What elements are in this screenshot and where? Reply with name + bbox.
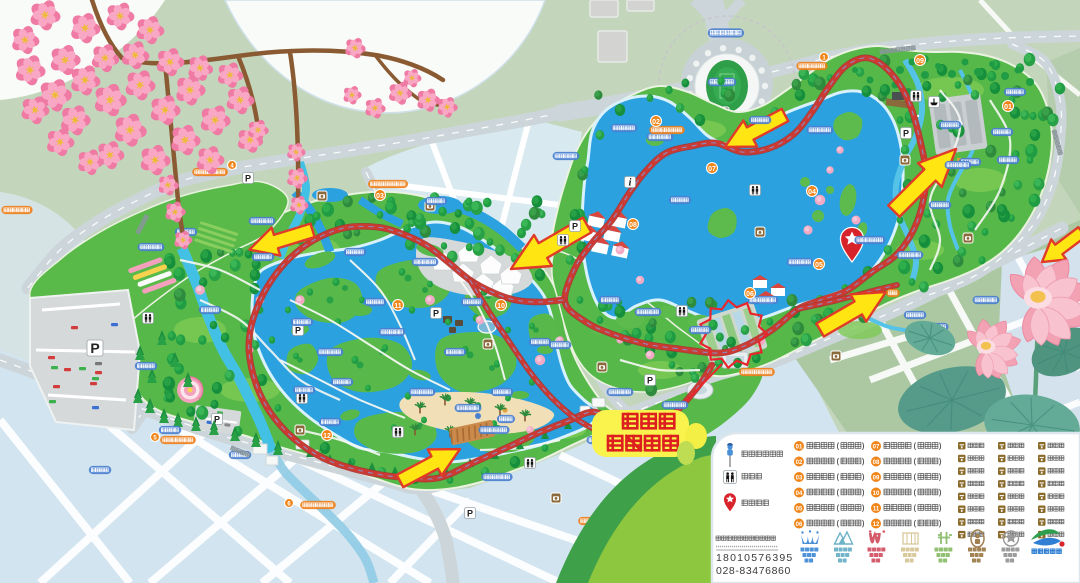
- svg-text:11: 11: [873, 506, 880, 512]
- svg-text:P: P: [433, 309, 439, 319]
- svg-text:12: 12: [873, 522, 880, 528]
- svg-text:P: P: [647, 376, 653, 386]
- svg-text:07: 07: [873, 444, 880, 450]
- svg-text:11: 11: [394, 303, 402, 310]
- svg-text:03: 03: [796, 475, 803, 481]
- svg-text:10: 10: [497, 303, 505, 310]
- svg-text:P: P: [295, 326, 301, 336]
- svg-text:P: P: [90, 340, 99, 356]
- svg-text:04: 04: [808, 189, 816, 196]
- svg-text:07: 07: [708, 166, 716, 173]
- svg-text:02: 02: [796, 460, 803, 466]
- svg-text:01: 01: [1004, 104, 1012, 111]
- svg-text:06: 06: [746, 291, 754, 298]
- svg-text:06: 06: [796, 522, 803, 528]
- svg-text:028-83476860: 028-83476860: [716, 565, 791, 577]
- svg-text:04: 04: [796, 491, 803, 497]
- svg-text:09: 09: [873, 475, 880, 481]
- svg-text:P: P: [572, 222, 578, 232]
- svg-text:P: P: [467, 509, 473, 519]
- svg-text:P: P: [245, 174, 251, 184]
- svg-text:P: P: [903, 129, 909, 139]
- svg-text:08: 08: [629, 222, 637, 229]
- svg-text:10: 10: [873, 491, 880, 497]
- svg-text:05: 05: [796, 506, 803, 512]
- svg-text:01: 01: [796, 444, 803, 450]
- svg-text:08: 08: [873, 460, 880, 466]
- svg-text:03: 03: [376, 193, 384, 200]
- svg-text:09: 09: [916, 58, 924, 65]
- svg-text:05: 05: [815, 262, 823, 269]
- svg-text:12: 12: [323, 433, 331, 440]
- svg-text:i: i: [629, 178, 632, 189]
- svg-text:02: 02: [652, 119, 660, 126]
- svg-text:18010576395: 18010576395: [716, 552, 793, 564]
